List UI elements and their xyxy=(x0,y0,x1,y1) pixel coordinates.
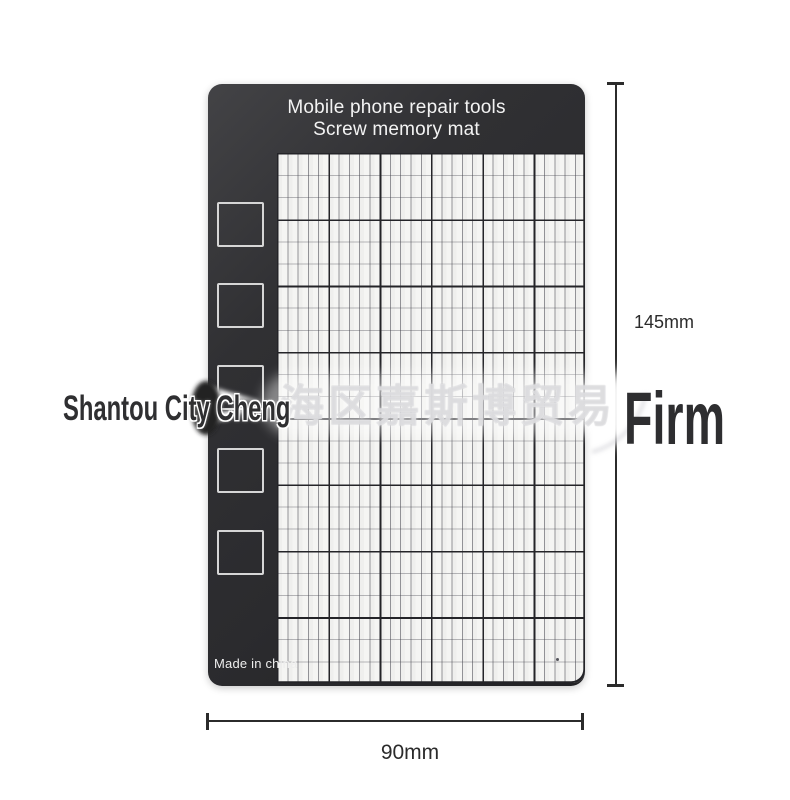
screw-slot xyxy=(217,283,264,328)
width-dimension-tick-right xyxy=(581,713,584,730)
width-dimension-tick-left xyxy=(206,713,209,730)
screw-slot xyxy=(217,202,264,247)
width-dimension-label: 90mm xyxy=(330,741,490,765)
height-dimension-tick-top xyxy=(607,82,624,85)
screw-slot xyxy=(217,530,264,575)
width-dimension-line xyxy=(207,720,584,722)
screw-slot xyxy=(217,448,264,493)
mat-title-line2: Screw memory mat xyxy=(208,119,585,141)
origin-label: Made in china xyxy=(214,656,298,671)
mat-title: Mobile phone repair tools Screw memory m… xyxy=(208,97,585,140)
watermark-prefix-text: Shantou City Cheng xyxy=(63,391,290,426)
mat-title-line1: Mobile phone repair tools xyxy=(208,97,585,119)
watermark-suffix-text: Firm xyxy=(624,382,725,456)
height-dimension-tick-bottom xyxy=(607,684,624,687)
watermark-cjk-text: 海区嘉斯博贸易 xyxy=(280,383,616,431)
grid-speck xyxy=(556,658,559,661)
product-image: Mobile phone repair tools Screw memory m… xyxy=(0,0,790,800)
height-dimension-label: 145mm xyxy=(634,312,694,333)
